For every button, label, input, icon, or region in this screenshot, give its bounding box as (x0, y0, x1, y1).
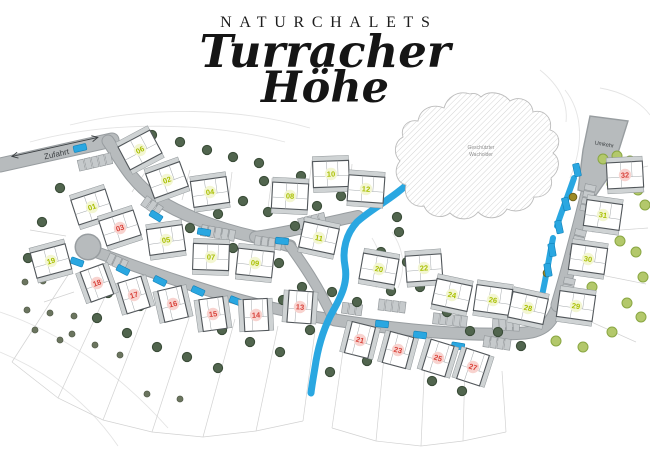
tree-icon (493, 327, 502, 336)
chalet-26[interactable]: 26 (473, 280, 514, 321)
chalet-15[interactable]: 15 (194, 296, 232, 332)
chalet-number: 29 (571, 301, 581, 311)
tree-icon (274, 258, 283, 267)
tree-icon (259, 176, 268, 185)
site-plan-page: Geschützter Wacholder 010203040506070809… (0, 0, 650, 450)
light-tree-icon (638, 272, 648, 282)
chalet-number: 12 (362, 184, 371, 194)
chalet-32[interactable]: 32 (606, 156, 644, 194)
tree-icon (175, 137, 184, 146)
chalet-17[interactable]: 17 (113, 275, 155, 316)
chalet-number: 26 (488, 295, 498, 305)
tree-icon (55, 183, 64, 192)
chalet-number: 05 (161, 235, 171, 245)
chalet-number: 14 (252, 310, 262, 319)
site-plan: Geschützter Wacholder 010203040506070809… (0, 0, 650, 450)
bush-icon (47, 310, 53, 316)
tree-icon (352, 297, 361, 306)
bush-icon (32, 327, 38, 333)
parking-stall (504, 339, 511, 351)
parking-stall (385, 300, 392, 312)
tree-icon (392, 212, 401, 221)
chalet-14[interactable]: 14 (238, 298, 274, 332)
bush-icon (57, 337, 63, 343)
car-marker (275, 237, 289, 245)
tree-icon (465, 326, 474, 335)
bush-icon (144, 391, 150, 397)
chalet-07[interactable]: 07 (192, 238, 229, 275)
parking-stalls (378, 299, 406, 313)
parking-stall (453, 315, 460, 327)
chalet-number: 08 (286, 191, 295, 200)
light-tree-icon (607, 327, 617, 337)
chalet-number: 22 (420, 263, 429, 273)
chalet-05[interactable]: 05 (146, 220, 187, 261)
protected-area-label-line2: Wacholder (469, 152, 493, 158)
car-marker (572, 163, 581, 177)
tree-icon (152, 342, 161, 351)
protected-area-label-line1: Geschützter (468, 145, 495, 151)
bush-icon (22, 279, 28, 285)
chalet-10[interactable]: 10 (312, 155, 349, 192)
tree-icon (202, 145, 211, 154)
parking-stall (490, 337, 497, 349)
tree-icon (213, 209, 222, 218)
bush-icon (24, 307, 30, 313)
tree-icon (254, 158, 263, 167)
bush-icon (177, 396, 183, 402)
chalet-number: 30 (583, 254, 593, 264)
tree-icon (182, 352, 191, 361)
tree-icon (245, 337, 254, 346)
tree-icon (213, 363, 222, 372)
juniper-shrub-icon (569, 193, 577, 201)
parking-stall (483, 336, 490, 348)
parking-stall (497, 338, 504, 350)
chalet-number: 20 (374, 264, 384, 274)
car-marker (375, 320, 389, 328)
parking-stall (378, 299, 385, 311)
chalet-number: 32 (621, 170, 630, 179)
tree-icon (275, 347, 284, 356)
chalet-number: 09 (250, 258, 259, 268)
tree-icon (228, 152, 237, 161)
tree-icon (457, 386, 466, 395)
chalet-11[interactable]: 11 (298, 217, 341, 260)
chalet-13[interactable]: 13 (282, 290, 318, 324)
tree-icon (327, 287, 336, 296)
chalet-number: 07 (207, 252, 216, 261)
chalet-number: 10 (327, 169, 336, 178)
tree-icon (297, 282, 306, 291)
parking-stall (392, 301, 399, 313)
parking-stall (399, 301, 406, 313)
cul-de-sac (75, 234, 102, 261)
chalet-number: 31 (598, 210, 608, 220)
tree-icon (394, 227, 403, 236)
tree-icon (122, 328, 131, 337)
chalet-20[interactable]: 20 (358, 248, 400, 290)
light-tree-icon (578, 342, 588, 352)
chalet-18[interactable]: 18 (76, 262, 119, 304)
chalet-12[interactable]: 12 (347, 170, 385, 208)
light-tree-icon (622, 298, 632, 308)
chalet-28[interactable]: 28 (507, 287, 550, 330)
bush-icon (117, 352, 123, 358)
parking-stalls (77, 153, 113, 171)
protected-area: Geschützter Wacholder (395, 93, 558, 219)
bush-icon (69, 331, 75, 337)
light-tree-icon (640, 200, 650, 210)
chalet-27[interactable]: 27 (452, 347, 494, 388)
light-tree-icon (551, 336, 561, 346)
chalet-08[interactable]: 08 (271, 177, 309, 215)
tree-icon (238, 196, 247, 205)
tree-icon (336, 191, 345, 200)
tree-icon (312, 201, 321, 210)
chalet-04[interactable]: 04 (190, 172, 231, 213)
parking-stall (341, 302, 348, 314)
chalet-30[interactable]: 30 (568, 239, 609, 280)
bush-icon (71, 313, 77, 319)
parking-stall (433, 313, 440, 325)
chalet-number: 13 (296, 302, 305, 312)
chalet-19[interactable]: 19 (29, 239, 73, 283)
parking-stall (460, 316, 467, 328)
tree-icon (290, 221, 299, 230)
car-marker (554, 220, 563, 234)
chalet-29[interactable]: 29 (556, 286, 597, 327)
chalet-number: 15 (208, 309, 218, 319)
tree-icon (427, 376, 436, 385)
tree-icon (516, 341, 525, 350)
tree-icon (37, 217, 46, 226)
chalet-09[interactable]: 09 (235, 243, 275, 283)
chalet-24[interactable]: 24 (431, 274, 474, 317)
tree-icon (325, 367, 334, 376)
tree-icon (185, 223, 194, 232)
chalet-31[interactable]: 31 (583, 195, 624, 236)
tree-icon (92, 313, 101, 322)
light-tree-icon (631, 247, 641, 257)
bush-icon (92, 342, 98, 348)
light-tree-icon (615, 236, 625, 246)
tree-icon (305, 325, 314, 334)
light-tree-icon (636, 312, 646, 322)
chalet-16[interactable]: 16 (153, 285, 193, 324)
